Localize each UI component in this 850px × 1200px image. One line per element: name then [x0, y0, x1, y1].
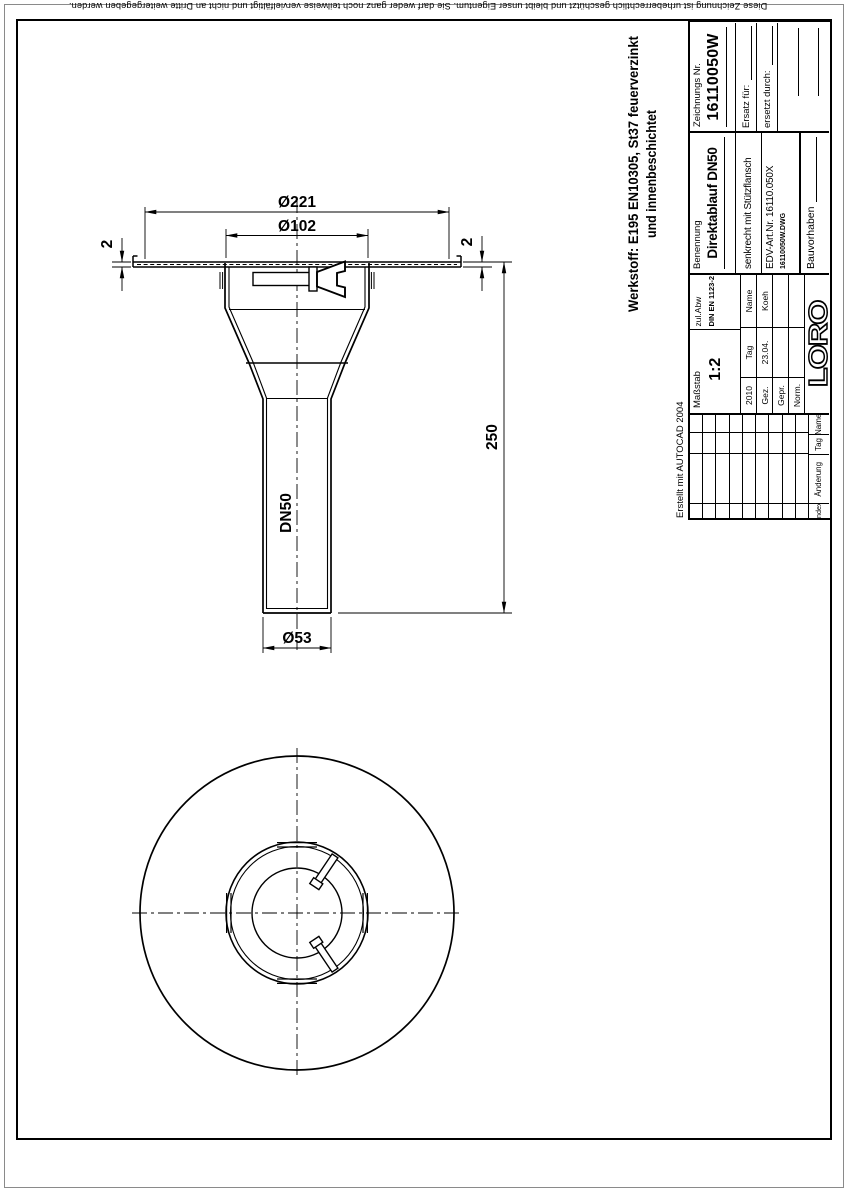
- revision-empty-row: [756, 415, 769, 518]
- project-label: Bauvorhaben: [805, 207, 817, 269]
- dwg-file-name: 16110050W.DWG: [780, 137, 787, 269]
- material-line2: und innenbeschichtet: [644, 110, 659, 238]
- revision-empty-row: [703, 415, 716, 518]
- pipe-size-label: DN50: [278, 493, 295, 533]
- edv-art-nr: EDV-Art.Nr. 16110.050X: [765, 137, 776, 269]
- approval-day-label: Tag: [740, 327, 756, 377]
- approval-table: 2010 Tag Name Gez. 23.04. Koeh Gepr. Nor…: [740, 275, 804, 413]
- scale-section: Maßstab 1:2 zul.Abw DIN EN 1123-2 2010 T…: [690, 273, 829, 413]
- revision-table: Index Änderung Tag Name: [690, 413, 829, 518]
- drawing-no-extra-lines: [778, 23, 828, 131]
- revision-empty-row: [783, 415, 796, 518]
- loro-logo: LORO: [806, 278, 830, 410]
- replaced-by-line: [761, 26, 773, 65]
- scale-cell: Maßstab 1:2: [690, 329, 740, 413]
- designation-value: Direktablauf DN50: [705, 137, 725, 269]
- checked-label: Gepr.: [772, 377, 788, 413]
- designation-section: Benennung Direktablauf DN50 senkrecht mi…: [690, 131, 829, 273]
- revision-empty-row: [796, 415, 809, 518]
- toggle-post: [309, 267, 317, 291]
- dim-text-221: Ø221: [278, 194, 316, 211]
- revision-day-label: Tag: [809, 434, 829, 455]
- revision-empty-row: [769, 415, 782, 518]
- drawn-date: 23.04.: [756, 327, 772, 377]
- title-block: Erstellt mit AUTOCAD 2004 Index Änderung…: [688, 20, 832, 520]
- drawing-sheet: Diese Zeichnung ist urheberrechtlich ges…: [0, 0, 850, 1200]
- plan-view: [132, 748, 462, 1078]
- revision-header-row: Index Änderung Tag Name: [809, 415, 829, 518]
- designation-subtitle: senkrecht mit Stützflansch: [736, 133, 762, 273]
- dim-text-102: Ø102: [278, 218, 316, 235]
- body-wall-right-inner: [328, 267, 366, 609]
- drawing-no-label: Zeichnungs Nr.: [692, 27, 703, 127]
- replacement-for-line: [740, 26, 752, 80]
- ext-lines-right2: [463, 262, 512, 267]
- material-note: Werkstoff: E195 EN10305, St37 feuerverzi…: [626, 36, 659, 312]
- logo-cell: LORO: [804, 275, 830, 413]
- revision-empty-row: [690, 415, 703, 518]
- ext-lines-left2: [112, 262, 131, 267]
- drawn-label: Gez.: [756, 377, 772, 413]
- body-wall-right: [331, 263, 369, 613]
- scale-label: Maßstab: [692, 330, 703, 408]
- section-view: [133, 198, 461, 650]
- revision-change-label: Änderung: [809, 454, 829, 503]
- tolerance-label: zul.Abw: [693, 276, 703, 326]
- revision-empty-row: [716, 415, 729, 518]
- tolerance-norm: DIN EN 1123-2: [707, 276, 716, 326]
- replaced-by-label: ersetzt durch:: [762, 70, 773, 128]
- approval-year: 2010: [740, 377, 756, 413]
- loro-logo-text: LORO: [806, 300, 830, 387]
- approval-name-label: Name: [740, 275, 756, 327]
- dim-text-2-right: 2: [459, 238, 476, 247]
- drawing-number-section: Zeichnungs Nr. 16110050W Ersatz für: ers…: [690, 23, 829, 131]
- revision-index-label: Index: [809, 503, 829, 518]
- body-wall-left: [225, 263, 263, 613]
- dim-text-2-left: 2: [99, 240, 116, 249]
- toggle-bar: [253, 273, 310, 286]
- extra-write-line: [818, 28, 819, 96]
- drawing-no-value: 16110050W: [705, 27, 727, 127]
- designation-label: Benennung: [692, 137, 703, 269]
- scale-value: 1:2: [707, 330, 725, 408]
- dim-text-53: Ø53: [282, 630, 312, 647]
- extra-write-line: [798, 28, 799, 96]
- revision-empty-row: [743, 415, 756, 518]
- revision-name-label: Name: [809, 415, 829, 434]
- project-write-line: [805, 137, 817, 202]
- revision-empty-row: [730, 415, 743, 518]
- drawn-name: Koeh: [756, 275, 772, 327]
- dim-text-250: 250: [484, 424, 501, 450]
- norm-label: Norm.: [788, 377, 804, 413]
- replacement-for-label: Ersatz für:: [741, 85, 752, 128]
- body-wall-left-inner: [229, 267, 267, 609]
- material-line1: Werkstoff: E195 EN10305, St37 feuerverzi…: [626, 36, 641, 312]
- tolerance-cell: zul.Abw DIN EN 1123-2: [690, 275, 740, 329]
- autocad-note: Erstellt mit AUTOCAD 2004: [675, 401, 686, 518]
